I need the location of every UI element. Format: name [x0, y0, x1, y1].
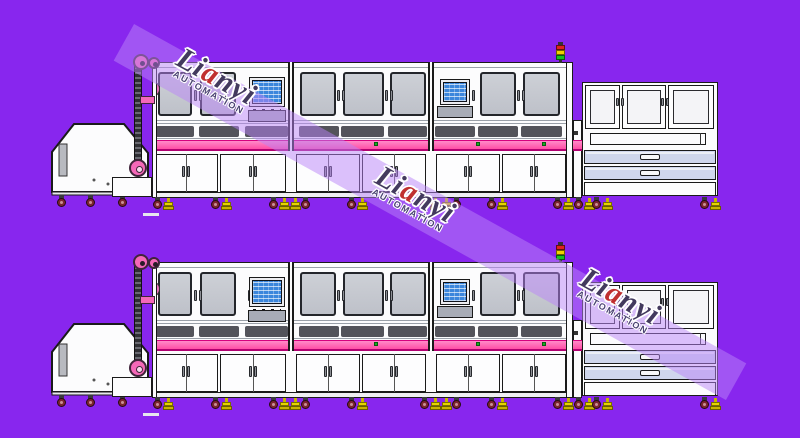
door-handle: [199, 90, 202, 101]
top-pulley-2-hub: [153, 62, 158, 67]
sprocket-hole: [136, 166, 143, 173]
wheel-hub: [577, 403, 580, 406]
sensor-dot: [542, 342, 546, 346]
wheel: [57, 398, 66, 407]
drawer-handle: [640, 154, 660, 160]
vent-panel: [199, 326, 239, 337]
door-handle: [621, 298, 624, 306]
wheel: [452, 400, 461, 409]
door-handle: [182, 166, 185, 177]
wheel-hub: [156, 403, 159, 406]
cabinet-window: [523, 72, 560, 116]
station-door-window: [673, 90, 709, 124]
foot-base: [710, 406, 721, 410]
sensor-dot: [476, 342, 480, 346]
foot-base: [497, 406, 508, 410]
caster-wheel: [269, 397, 278, 411]
caster-wheel: [592, 397, 601, 411]
cad-drawing-canvas: LianyiAUTOMATIONLianyiAUTOMATIONLianyiAU…: [0, 0, 800, 438]
hopper-slot-window: [59, 144, 67, 176]
door-handle: [194, 90, 197, 101]
door-handle: [464, 366, 467, 377]
door-handle: [390, 166, 393, 177]
door-handle: [535, 166, 538, 177]
door-handle: [522, 290, 525, 301]
door-handle: [517, 290, 520, 301]
vent-panel: [341, 126, 384, 137]
foot-base: [221, 406, 232, 410]
door-handle: [530, 366, 533, 377]
vent-panel: [388, 326, 427, 337]
leveling-foot: [279, 398, 290, 411]
leveling-foot: [441, 398, 452, 411]
foot-base: [441, 406, 452, 410]
wheel: [347, 400, 356, 409]
vent-panel: [435, 326, 475, 337]
leveling-foot: [357, 398, 368, 411]
frame-rail: [152, 138, 573, 139]
hopper-speck: [107, 183, 110, 186]
wheel-hub: [121, 401, 124, 404]
machine-left-wall: [152, 262, 157, 398]
frame-rail: [152, 123, 573, 124]
door-handle: [390, 366, 393, 377]
monitor-screen: [443, 82, 467, 102]
sensor-dot: [542, 142, 546, 146]
caster-wheel: [347, 397, 356, 411]
vent-panel: [156, 126, 194, 137]
door-handle: [342, 290, 345, 301]
door-handle: [390, 290, 393, 301]
door-handle: [464, 166, 467, 177]
vent-panel: [388, 126, 427, 137]
cabinet-window: [158, 72, 192, 116]
cabinet-window: [300, 272, 336, 316]
door-handle: [187, 166, 190, 177]
door-handle: [661, 298, 664, 306]
wheel: [153, 400, 162, 409]
module-divider: [428, 262, 434, 351]
door-handle: [661, 98, 664, 106]
monitor-screen: [252, 280, 282, 304]
conveyor-band: [152, 340, 573, 351]
door-handle: [254, 366, 257, 377]
caster-wheel: [574, 397, 583, 411]
wheel: [553, 400, 562, 409]
caster-wheel: [700, 397, 709, 411]
vent-panel: [245, 126, 288, 137]
station-bottom-panel: [584, 182, 716, 196]
foot-base: [602, 406, 613, 410]
vent-panel: [341, 326, 384, 337]
elevator-crossbar: [140, 96, 155, 104]
cabinet-window: [200, 272, 236, 316]
connector-block: [574, 331, 578, 335]
wheel-hub: [60, 401, 63, 404]
door-handle: [249, 166, 252, 177]
wheel: [487, 400, 496, 409]
wheel: [574, 400, 583, 409]
door-handle: [342, 90, 345, 101]
door-handle: [517, 90, 520, 101]
caster-wheel: [420, 397, 429, 411]
station-slot-divider: [700, 333, 701, 345]
wheel: [301, 400, 310, 409]
vent-panel: [199, 126, 239, 137]
top-pulley-2: [148, 57, 160, 69]
vent-panel: [245, 326, 288, 337]
foot-base: [563, 406, 574, 410]
station-door-window: [627, 290, 661, 324]
top-pulley-2: [148, 257, 160, 269]
door-handle: [194, 290, 197, 301]
top-pulley: [133, 254, 149, 270]
sensor-dot: [374, 142, 378, 146]
caster-wheel: [57, 395, 66, 409]
foot-base: [290, 406, 301, 410]
vent-panel: [478, 326, 518, 337]
top-pulley: [133, 54, 149, 70]
leveling-foot: [290, 398, 301, 411]
sensor-dot: [374, 342, 378, 346]
door-handle: [469, 366, 472, 377]
wheel: [211, 400, 220, 409]
outfeed-table: [112, 377, 152, 397]
door-handle: [329, 166, 332, 177]
drawer-handle: [640, 170, 660, 176]
door-handle: [324, 366, 327, 377]
frame-rail: [152, 323, 573, 324]
monitor-screen: [443, 282, 467, 302]
door-handle: [616, 298, 619, 306]
cabinet-window: [480, 272, 516, 316]
vent-panel: [521, 126, 562, 137]
door-handle: [395, 366, 398, 377]
hopper-speck: [93, 179, 96, 182]
foot-base: [357, 406, 368, 410]
vent-panel: [299, 326, 339, 337]
door-handle: [329, 366, 332, 377]
door-handle: [472, 290, 475, 301]
keyboard-tray: [248, 310, 286, 322]
wheel: [700, 400, 709, 409]
wheel-hub: [455, 403, 458, 406]
leveling-foot: [710, 398, 721, 411]
connector-conveyor: [573, 140, 582, 151]
station-door-window: [673, 290, 709, 324]
vent-panel: [299, 126, 339, 137]
station-door-window: [590, 290, 615, 324]
door-handle: [395, 166, 398, 177]
station-band-slot: [590, 333, 706, 345]
leveling-foot: [221, 398, 232, 411]
hopper-slot-window: [59, 344, 67, 376]
caster-wheel: [452, 397, 461, 411]
tower-stem: [559, 60, 562, 63]
tower-stem: [559, 260, 562, 263]
wheel-hub: [423, 403, 426, 406]
machine-right-wall: [566, 262, 573, 398]
connector-conveyor: [573, 340, 582, 351]
door-handle: [187, 366, 190, 377]
leveling-foot: [602, 398, 613, 411]
wheel-hub: [272, 403, 275, 406]
foot-base: [163, 406, 174, 410]
frame-rail: [152, 320, 573, 321]
door-handle: [337, 90, 340, 101]
door-handle: [254, 166, 257, 177]
caster-wheel: [118, 395, 127, 409]
caster-wheel: [301, 397, 310, 411]
frame-rail: [152, 67, 573, 68]
production-line-1: [0, 0, 800, 220]
elevator-crossbar: [140, 296, 155, 304]
monitor-screen: [252, 80, 282, 104]
door-handle: [249, 366, 252, 377]
door-handle: [324, 166, 327, 177]
bottom-sprocket: [129, 359, 147, 377]
wheel-hub: [89, 401, 92, 404]
keyboard-tray: [437, 306, 473, 318]
cabinet-window: [343, 272, 384, 316]
door-handle: [472, 90, 475, 101]
bottom-sprocket: [129, 159, 147, 177]
outfeed-table: [112, 177, 152, 197]
frame-rail: [152, 120, 573, 121]
frame-rail: [152, 338, 573, 339]
door-handle: [390, 90, 393, 101]
reference-dash: [143, 413, 159, 416]
machine-left-wall: [152, 62, 157, 198]
wheel: [118, 398, 127, 407]
vent-panel: [435, 126, 475, 137]
module-divider: [288, 62, 294, 151]
caster-wheel: [553, 397, 562, 411]
cabinet-window: [390, 72, 426, 116]
keyboard-tray: [248, 110, 286, 122]
door-handle: [616, 98, 619, 106]
vent-panel: [478, 126, 518, 137]
door-handle: [385, 290, 388, 301]
foot-base: [279, 406, 290, 410]
door-handle: [337, 290, 340, 301]
leveling-foot: [497, 398, 508, 411]
elevator-chain: [134, 266, 142, 368]
cabinet-window: [343, 72, 384, 116]
caster-wheel: [211, 397, 220, 411]
door-handle: [385, 90, 388, 101]
elevator-chain: [134, 66, 142, 168]
wheel-hub: [556, 403, 559, 406]
wheel-hub: [595, 403, 598, 406]
cabinet-window: [200, 72, 236, 116]
caster-wheel: [487, 397, 496, 411]
cabinet-window: [523, 272, 560, 316]
caster-wheel: [153, 397, 162, 411]
wheel: [420, 400, 429, 409]
door-handle: [530, 166, 533, 177]
wheel-hub: [703, 403, 706, 406]
door-handle: [469, 166, 472, 177]
door-handle: [666, 298, 669, 306]
production-line-2: [0, 200, 800, 420]
module-divider: [288, 262, 294, 351]
caster-wheel: [86, 395, 95, 409]
top-pulley-hub: [140, 61, 145, 66]
frame-rail: [152, 267, 573, 268]
foot-base: [430, 406, 441, 410]
wheel-hub: [214, 403, 217, 406]
station-slot-divider: [700, 133, 701, 145]
conveyor-band: [152, 140, 573, 151]
wheel-hub: [304, 403, 307, 406]
wheel: [269, 400, 278, 409]
machine-right-wall: [566, 62, 573, 198]
door-handle: [666, 98, 669, 106]
top-pulley-2-hub: [153, 262, 158, 267]
cabinet-window: [480, 72, 516, 116]
drawer-handle: [640, 354, 660, 360]
door-handle: [522, 90, 525, 101]
sensor-dot: [476, 142, 480, 146]
keyboard-tray: [437, 106, 473, 118]
station-bottom-panel: [584, 382, 716, 396]
cabinet-window: [158, 272, 192, 316]
connector-block: [574, 131, 578, 135]
leveling-foot: [430, 398, 441, 411]
drawer-handle: [640, 370, 660, 376]
door-handle: [182, 366, 185, 377]
vent-panel: [521, 326, 562, 337]
vent-panel: [156, 326, 194, 337]
wheel-hub: [350, 403, 353, 406]
wheel: [592, 400, 601, 409]
top-pulley-hub: [140, 261, 145, 266]
cabinet-window: [300, 72, 336, 116]
wheel-hub: [490, 403, 493, 406]
hopper-speck: [93, 379, 96, 382]
module-divider: [428, 62, 434, 151]
leveling-foot: [563, 398, 574, 411]
sprocket-hole: [136, 366, 143, 373]
station-door-window: [590, 90, 615, 124]
cabinet-window: [390, 272, 426, 316]
wheel: [86, 398, 95, 407]
station-door-window: [627, 90, 661, 124]
door-handle: [535, 366, 538, 377]
station-band-slot: [590, 133, 706, 145]
leveling-foot: [163, 398, 174, 411]
door-handle: [621, 98, 624, 106]
door-handle: [199, 290, 202, 301]
hopper-speck: [107, 383, 110, 386]
